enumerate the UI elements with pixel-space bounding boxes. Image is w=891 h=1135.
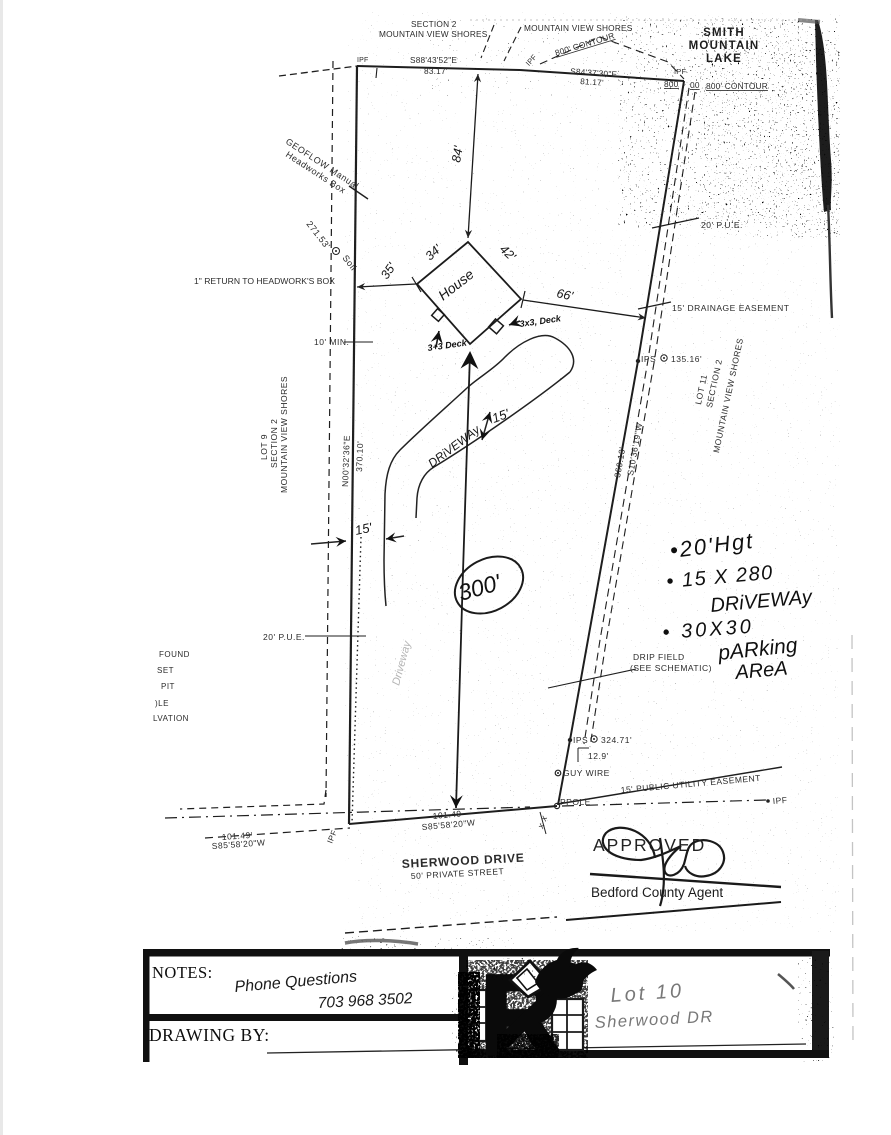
svg-text:Sherwood DR: Sherwood DR — [594, 1008, 714, 1032]
svg-text:Lot 10: Lot 10 — [610, 980, 685, 1007]
svg-text:FOUND: FOUND — [159, 650, 190, 659]
svg-text:SECTION 2: SECTION 2 — [269, 419, 279, 468]
svg-text:Phone Questions: Phone Questions — [234, 968, 358, 996]
svg-text:S85'58'20"W: S85'58'20"W — [211, 837, 265, 851]
svg-text:LVATION: LVATION — [153, 714, 189, 723]
svg-text:DRAWING BY:: DRAWING BY: — [149, 1025, 270, 1045]
svg-text:)LE: )LE — [155, 699, 169, 708]
svg-text:NOTES:: NOTES: — [152, 963, 213, 982]
svg-text:20' P.U.E.: 20' P.U.E. — [263, 632, 305, 642]
svg-text:10' MIN.: 10' MIN. — [314, 337, 349, 347]
svg-text:IPF: IPF — [326, 828, 340, 844]
svg-text:LOT 9: LOT 9 — [259, 434, 269, 460]
svg-text:SET: SET — [157, 666, 174, 675]
svg-text:1" RETURN TO HEADWORK'S BOX: 1" RETURN TO HEADWORK'S BOX — [194, 276, 335, 286]
svg-text:703 968 3502: 703 968 3502 — [317, 990, 413, 1012]
svg-text:MOUNTAIN VIEW SHORES: MOUNTAIN VIEW SHORES — [279, 376, 289, 493]
svg-text:271.53': 271.53' — [304, 219, 332, 251]
svg-text:PIT: PIT — [161, 682, 175, 691]
